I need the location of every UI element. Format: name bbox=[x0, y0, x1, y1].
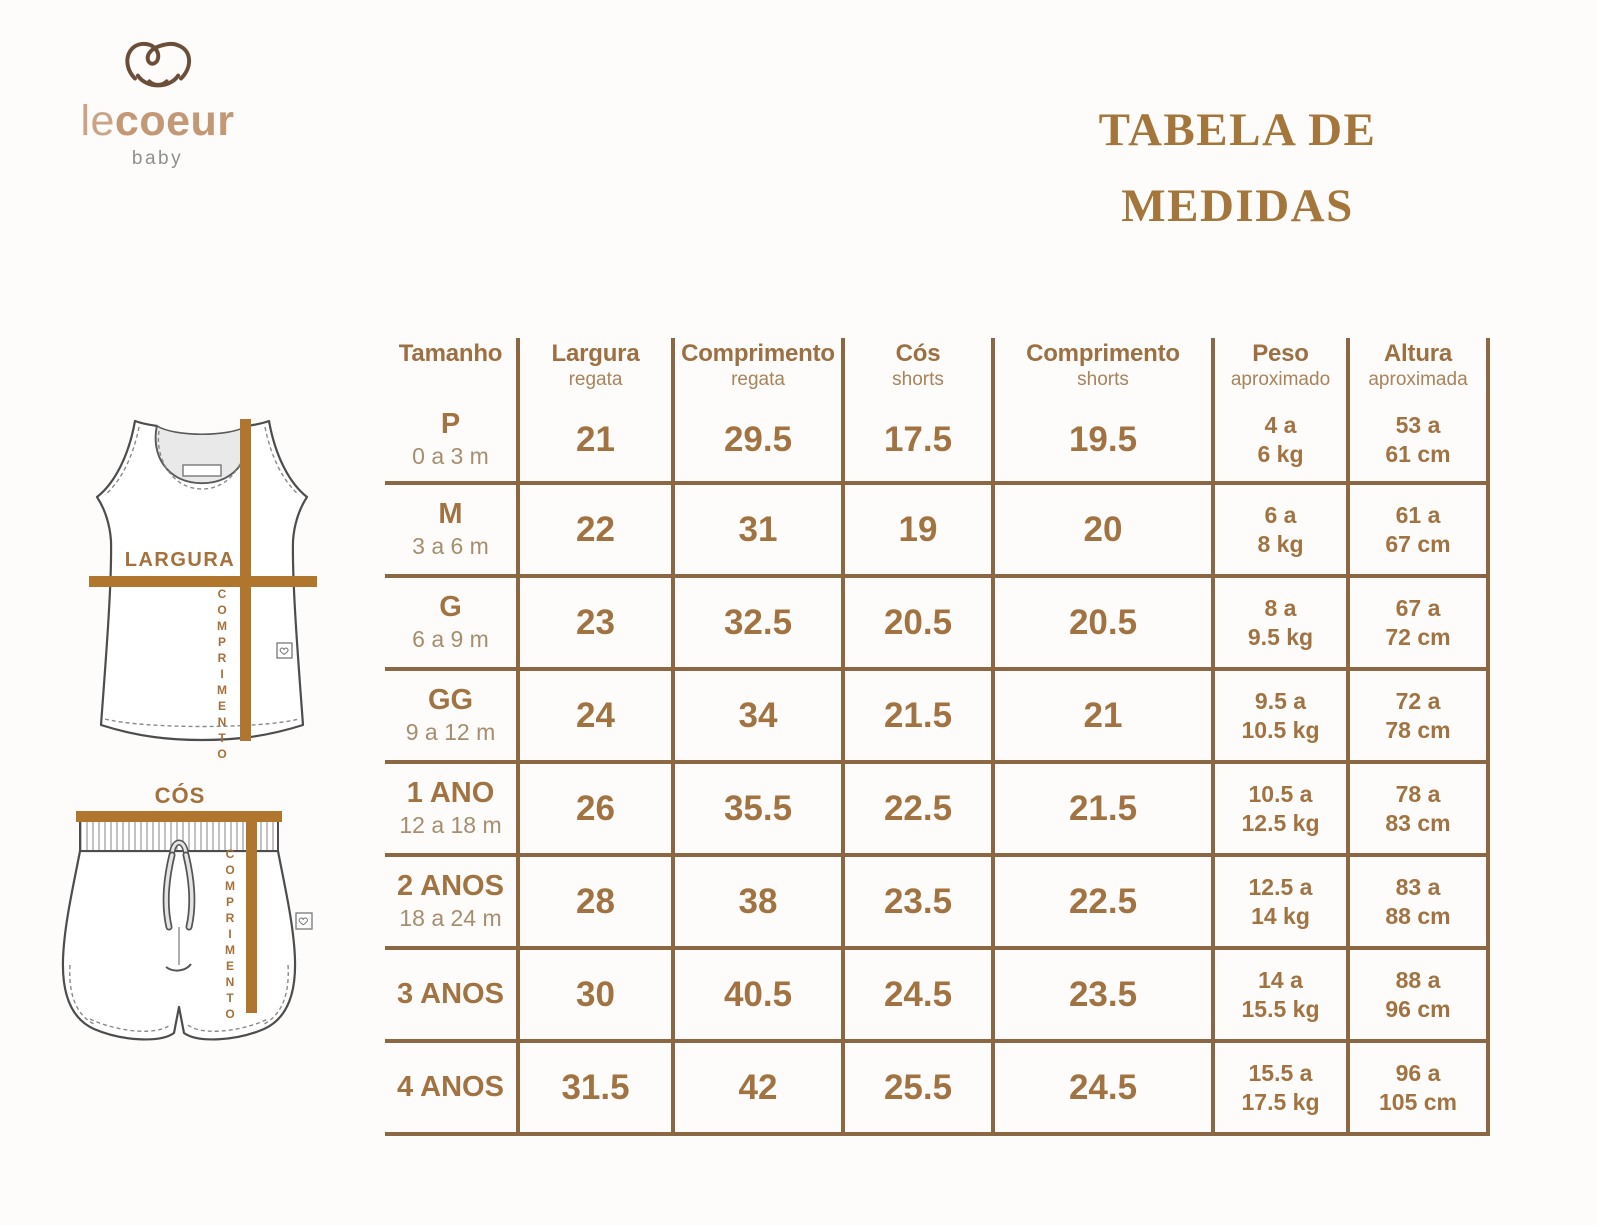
peso-line1: 9.5 a bbox=[1255, 687, 1306, 716]
cos-shorts-value: 22.5 bbox=[845, 764, 995, 853]
comprimento-shorts-value: 21 bbox=[995, 671, 1215, 760]
largura-regata-value: 22 bbox=[520, 485, 675, 574]
peso-value: 6 a8 kg bbox=[1215, 485, 1350, 574]
altura-line2: 72 cm bbox=[1385, 623, 1450, 652]
size-cell: M3 a 6 m bbox=[385, 485, 520, 574]
largura-regata-value: 30 bbox=[520, 950, 675, 1039]
peso-line1: 14 a bbox=[1258, 966, 1303, 995]
brand-wordmark-le: le bbox=[80, 97, 114, 145]
page-title-line1: TABELA DE bbox=[1005, 92, 1470, 168]
header-main: Comprimento bbox=[681, 340, 835, 368]
peso-value: 9.5 a10.5 kg bbox=[1215, 671, 1350, 760]
size-name: 2 ANOS bbox=[397, 871, 504, 903]
cos-shorts-value: 19 bbox=[845, 485, 995, 574]
size-cell: GG9 a 12 m bbox=[385, 671, 520, 760]
size-name: 4 ANOS bbox=[397, 1072, 504, 1104]
altura-line2: 78 cm bbox=[1385, 716, 1450, 745]
peso-line1: 12.5 a bbox=[1249, 873, 1313, 902]
size-name: P bbox=[441, 409, 460, 441]
altura-line1: 53 a bbox=[1396, 411, 1441, 440]
size-age-range: 3 a 6 m bbox=[412, 533, 489, 560]
tank-top-diagram: LARGURA COMPRIMENTO bbox=[75, 415, 330, 745]
header-comprimento-regata: Comprimento regata bbox=[675, 338, 845, 398]
page-title: TABELA DE MEDIDAS bbox=[1005, 92, 1470, 244]
table-row: M3 a 6 m223119206 a8 kg61 a67 cm bbox=[385, 485, 1490, 578]
header-comprimento-shorts: Comprimento shorts bbox=[995, 338, 1215, 398]
size-cell: G6 a 9 m bbox=[385, 578, 520, 667]
brand-wordmark-coeur: coeur bbox=[115, 97, 235, 145]
peso-line1: 10.5 a bbox=[1249, 780, 1313, 809]
comprimento-regata-value: 34 bbox=[675, 671, 845, 760]
cos-shorts-value: 23.5 bbox=[845, 857, 995, 946]
header-largura-regata: Largura regata bbox=[520, 338, 675, 398]
header-main: Altura bbox=[1384, 340, 1452, 368]
altura-line1: 61 a bbox=[1396, 501, 1441, 530]
comprimento-regata-value: 29.5 bbox=[675, 398, 845, 481]
largura-regata-value: 21 bbox=[520, 398, 675, 481]
comprimento-regata-value: 32.5 bbox=[675, 578, 845, 667]
altura-line2: 88 cm bbox=[1385, 902, 1450, 931]
peso-line2: 8 kg bbox=[1257, 530, 1303, 559]
tank-top-illustration bbox=[75, 415, 330, 745]
altura-value: 53 a61 cm bbox=[1350, 398, 1490, 481]
altura-line2: 83 cm bbox=[1385, 809, 1450, 838]
peso-value: 4 a6 kg bbox=[1215, 398, 1350, 481]
peso-line2: 10.5 kg bbox=[1242, 716, 1320, 745]
brand-wordmark: lecoeur bbox=[50, 100, 265, 143]
size-cell: 4 ANOS bbox=[385, 1043, 520, 1132]
peso-line2: 15.5 kg bbox=[1242, 995, 1320, 1024]
comprimento-shorts-value: 20.5 bbox=[995, 578, 1215, 667]
peso-line1: 4 a bbox=[1265, 411, 1297, 440]
comprimento-regata-value: 40.5 bbox=[675, 950, 845, 1039]
largura-regata-value: 26 bbox=[520, 764, 675, 853]
shorts-comprimento-measure-bar bbox=[246, 811, 257, 1013]
cos-shorts-value: 25.5 bbox=[845, 1043, 995, 1132]
table-row: 2 ANOS18 a 24 m283823.522.512.5 a14 kg83… bbox=[385, 857, 1490, 950]
table-row: 1 ANO12 a 18 m2635.522.521.510.5 a12.5 k… bbox=[385, 764, 1490, 857]
header-sub: aproximado bbox=[1231, 369, 1330, 391]
largura-regata-value: 31.5 bbox=[520, 1043, 675, 1132]
header-main: Tamanho bbox=[399, 340, 503, 368]
cos-label: CÓS bbox=[130, 783, 230, 809]
altura-line1: 83 a bbox=[1396, 873, 1441, 902]
comprimento-shorts-value: 20 bbox=[995, 485, 1215, 574]
brand-subtext: baby bbox=[50, 148, 265, 170]
header-altura: Altura aproximada bbox=[1350, 338, 1490, 398]
altura-value: 67 a72 cm bbox=[1350, 578, 1490, 667]
peso-value: 12.5 a14 kg bbox=[1215, 857, 1350, 946]
altura-value: 72 a78 cm bbox=[1350, 671, 1490, 760]
shorts-side-tag bbox=[296, 913, 312, 929]
size-cell: 2 ANOS18 a 24 m bbox=[385, 857, 520, 946]
header-tamanho: Tamanho bbox=[385, 338, 520, 398]
header-sub: aproximada bbox=[1368, 369, 1467, 391]
size-name: M bbox=[438, 499, 462, 531]
size-name: G bbox=[439, 592, 462, 624]
altura-line2: 61 cm bbox=[1385, 440, 1450, 469]
shorts-diagram: CÓS COMPRIMENTO bbox=[60, 775, 340, 1060]
tank-comprimento-label: COMPRIMENTO bbox=[215, 587, 229, 739]
peso-value: 15.5 a17.5 kg bbox=[1215, 1043, 1350, 1132]
altura-value: 83 a88 cm bbox=[1350, 857, 1490, 946]
altura-line1: 96 a bbox=[1396, 1059, 1441, 1088]
altura-value: 78 a83 cm bbox=[1350, 764, 1490, 853]
altura-line2: 96 cm bbox=[1385, 995, 1450, 1024]
peso-line2: 9.5 kg bbox=[1248, 623, 1313, 652]
altura-line1: 78 a bbox=[1396, 780, 1441, 809]
size-age-range: 9 a 12 m bbox=[406, 719, 496, 746]
header-main: Peso bbox=[1252, 340, 1309, 368]
altura-line1: 67 a bbox=[1396, 594, 1441, 623]
altura-line1: 72 a bbox=[1396, 687, 1441, 716]
size-table-rows: P0 a 3 m2129.517.519.54 a6 kg53 a61 cmM3… bbox=[385, 398, 1490, 1136]
header-main: Comprimento bbox=[1026, 340, 1180, 368]
largura-regata-value: 23 bbox=[520, 578, 675, 667]
comprimento-regata-value: 38 bbox=[675, 857, 845, 946]
comprimento-regata-value: 35.5 bbox=[675, 764, 845, 853]
comprimento-shorts-value: 24.5 bbox=[995, 1043, 1215, 1132]
size-name: GG bbox=[428, 685, 473, 717]
size-cell: 1 ANO12 a 18 m bbox=[385, 764, 520, 853]
header-cos-shorts: Cós shorts bbox=[845, 338, 995, 398]
largura-regata-value: 28 bbox=[520, 857, 675, 946]
size-age-range: 0 a 3 m bbox=[412, 443, 489, 470]
size-name: 1 ANO bbox=[407, 778, 495, 810]
altura-value: 96 a105 cm bbox=[1350, 1043, 1490, 1132]
size-name: 3 ANOS bbox=[397, 979, 504, 1011]
table-row: 4 ANOS31.54225.524.515.5 a17.5 kg96 a105… bbox=[385, 1043, 1490, 1136]
table-row: G6 a 9 m2332.520.520.58 a9.5 kg67 a72 cm bbox=[385, 578, 1490, 671]
size-age-range: 12 a 18 m bbox=[399, 812, 501, 839]
header-main: Largura bbox=[552, 340, 640, 368]
peso-line1: 15.5 a bbox=[1249, 1059, 1313, 1088]
header-main: Cós bbox=[896, 340, 941, 368]
peso-line2: 6 kg bbox=[1257, 440, 1303, 469]
page-title-line2: MEDIDAS bbox=[1005, 168, 1470, 244]
table-row: GG9 a 12 m243421.5219.5 a10.5 kg72 a78 c… bbox=[385, 671, 1490, 764]
altura-value: 61 a67 cm bbox=[1350, 485, 1490, 574]
cos-shorts-value: 17.5 bbox=[845, 398, 995, 481]
largura-regata-value: 24 bbox=[520, 671, 675, 760]
comprimento-regata-value: 42 bbox=[675, 1043, 845, 1132]
largura-label: LARGURA bbox=[118, 549, 242, 572]
size-age-range: 6 a 9 m bbox=[412, 626, 489, 653]
largura-measure-bar bbox=[89, 576, 317, 587]
table-row: 3 ANOS3040.524.523.514 a15.5 kg88 a96 cm bbox=[385, 950, 1490, 1043]
peso-line2: 17.5 kg bbox=[1242, 1088, 1320, 1117]
header-sub: regata bbox=[731, 369, 785, 391]
peso-value: 10.5 a12.5 kg bbox=[1215, 764, 1350, 853]
table-row: P0 a 3 m2129.517.519.54 a6 kg53 a61 cm bbox=[385, 398, 1490, 485]
header-sub: shorts bbox=[892, 369, 944, 391]
size-cell: 3 ANOS bbox=[385, 950, 520, 1039]
size-table: Tamanho Largura regata Comprimento regat… bbox=[385, 338, 1490, 1136]
header-peso: Peso aproximado bbox=[1215, 338, 1350, 398]
heart-logo-icon bbox=[122, 36, 194, 98]
tank-side-tag bbox=[277, 643, 292, 658]
altura-line1: 88 a bbox=[1396, 966, 1441, 995]
altura-line2: 105 cm bbox=[1379, 1088, 1457, 1117]
comprimento-regata-value: 31 bbox=[675, 485, 845, 574]
comprimento-shorts-value: 19.5 bbox=[995, 398, 1215, 481]
comprimento-shorts-value: 23.5 bbox=[995, 950, 1215, 1039]
peso-line2: 14 kg bbox=[1251, 902, 1310, 931]
tank-comprimento-measure-bar bbox=[240, 419, 251, 741]
size-age-range: 18 a 24 m bbox=[399, 905, 501, 932]
peso-line1: 6 a bbox=[1265, 501, 1297, 530]
cos-shorts-value: 24.5 bbox=[845, 950, 995, 1039]
shorts-illustration bbox=[60, 775, 340, 1060]
peso-value: 14 a15.5 kg bbox=[1215, 950, 1350, 1039]
comprimento-shorts-value: 22.5 bbox=[995, 857, 1215, 946]
shorts-comprimento-label: COMPRIMENTO bbox=[223, 847, 237, 1007]
brand-logo: lecoeur baby bbox=[50, 36, 265, 170]
peso-line2: 12.5 kg bbox=[1242, 809, 1320, 838]
size-cell: P0 a 3 m bbox=[385, 398, 520, 481]
peso-line1: 8 a bbox=[1265, 594, 1297, 623]
peso-value: 8 a9.5 kg bbox=[1215, 578, 1350, 667]
altura-value: 88 a96 cm bbox=[1350, 950, 1490, 1039]
table-header-row: Tamanho Largura regata Comprimento regat… bbox=[385, 338, 1490, 398]
header-sub: shorts bbox=[1077, 369, 1129, 391]
comprimento-shorts-value: 21.5 bbox=[995, 764, 1215, 853]
cos-shorts-value: 21.5 bbox=[845, 671, 995, 760]
header-sub: regata bbox=[569, 369, 623, 391]
altura-line2: 67 cm bbox=[1385, 530, 1450, 559]
cos-shorts-value: 20.5 bbox=[845, 578, 995, 667]
